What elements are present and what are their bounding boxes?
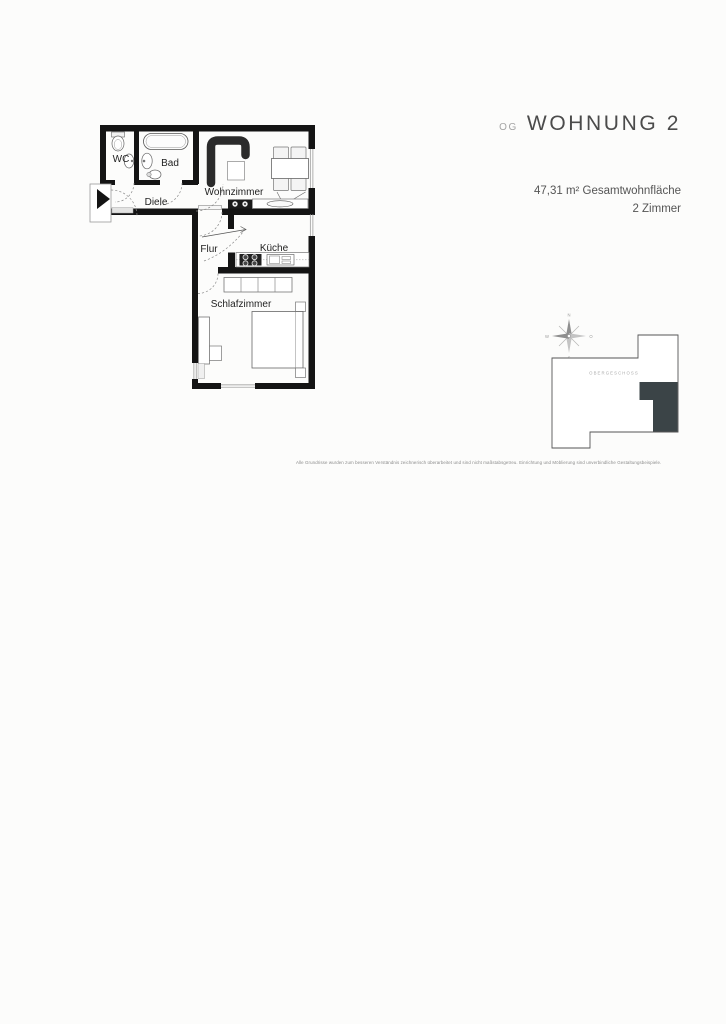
tall-wardrobe [199, 317, 210, 364]
svg-text:O: O [589, 334, 593, 339]
room-label-bad: Bad [161, 158, 179, 169]
room-label-wc: WC [113, 154, 130, 165]
room-count: 2 Zimmer [534, 201, 681, 219]
desk [210, 346, 222, 361]
plan-canvas: WC Bad Diele Wohnzimmer Flur Küche Schla… [0, 0, 726, 1024]
room-label-kueche: Küche [260, 243, 289, 254]
location-minimap: N O S W OBERGESCHOSS [545, 313, 678, 449]
svg-text:N: N [567, 313, 570, 318]
page-title: WOHNUNG 2 [527, 112, 681, 136]
scanned-floorplan-page: WC Bad Diele Wohnzimmer Flur Küche Schla… [0, 0, 726, 1024]
side-table [228, 162, 245, 181]
window-wohnzimmer [310, 149, 313, 188]
dish [267, 201, 293, 207]
total-area: 47,31 m² Gesamtwohnfläche [534, 183, 681, 201]
chair [291, 147, 306, 159]
svg-text:W: W [545, 334, 549, 339]
compass-icon: N O S W [545, 313, 593, 361]
window-schlafzimmer-bottom [221, 385, 255, 387]
floor-plan: WC Bad Diele Wohnzimmer Flur Küche Schla… [90, 125, 315, 389]
chair [291, 178, 306, 191]
chair [274, 147, 289, 159]
apartment-stats: 47,31 m² Gesamtwohnfläche 2 Zimmer [534, 183, 681, 218]
apartment-header: OG WOHNUNG 2 [499, 112, 681, 136]
room-label-flur: Flur [200, 244, 218, 255]
room-label-schlafzimmer: Schlafzimmer [211, 299, 272, 310]
passthrough-counter [228, 199, 308, 209]
schlafzimmer-furniture [198, 278, 306, 379]
door-swing-arcs [111, 183, 243, 294]
radiator [198, 364, 205, 379]
kitchen-passage-arrow-icon [202, 227, 246, 238]
room-label-diele: Diele [145, 197, 168, 208]
disclaimer-text: Alle Grundrisse wurden zum besseren Vers… [296, 460, 692, 465]
room-label-wohnzimmer: Wohnzimmer [205, 187, 264, 198]
kitchen-counter [236, 253, 309, 268]
door-leaf [199, 206, 222, 210]
toilet [112, 136, 124, 151]
chair [274, 178, 289, 191]
dining-table [272, 159, 309, 179]
doormat [112, 208, 133, 214]
window-kueche [310, 214, 313, 236]
floor-tag: OG [499, 122, 518, 133]
bad-fixtures [142, 134, 188, 180]
nightstand [296, 368, 306, 378]
sideboard [228, 200, 252, 209]
minimap-floor-label: OBERGESCHOSS [589, 371, 639, 376]
nightstand [296, 302, 306, 312]
window-schlafzimmer-left [194, 363, 196, 379]
